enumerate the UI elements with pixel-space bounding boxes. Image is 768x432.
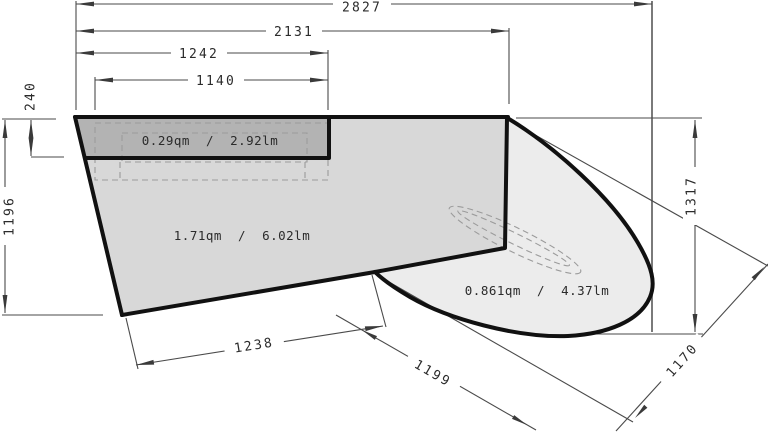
- dim-label-240: 240: [24, 81, 39, 111]
- area-label-main: 1.71qm / 6.02lm: [174, 228, 310, 243]
- dim-label-1140: 1140: [196, 74, 236, 89]
- dim-label-1242: 1242: [179, 47, 219, 62]
- floor-plan-drawing: 2827 2131 1242 1140 240 1196 1317 1238 1…: [0, 0, 768, 432]
- dim-label-1170: 1170: [664, 341, 702, 381]
- dim-arrow-1199-start: [362, 330, 377, 340]
- area-label-strip: 0.29qm / 2.92lm: [142, 133, 278, 148]
- dim-label-1196: 1196: [3, 196, 18, 236]
- dim-arrow-1170-end: [752, 267, 764, 280]
- dim-label-1317: 1317: [685, 176, 700, 216]
- dim-label-1238: 1238: [233, 335, 275, 356]
- dim-label-1199: 1199: [411, 357, 453, 390]
- technical-drawing-page: 2827 2131 1242 1140 240 1196 1317 1238 1…: [0, 0, 768, 432]
- dim-arrow-1199-end: [512, 415, 527, 425]
- dim-label-2131: 2131: [274, 25, 314, 40]
- area-label-bay: 0.861qm / 4.37lm: [465, 283, 609, 298]
- shape-fills: [75, 117, 653, 336]
- dim-arrow-1170-start: [635, 405, 647, 418]
- dim-label-2827: 2827: [342, 1, 382, 16]
